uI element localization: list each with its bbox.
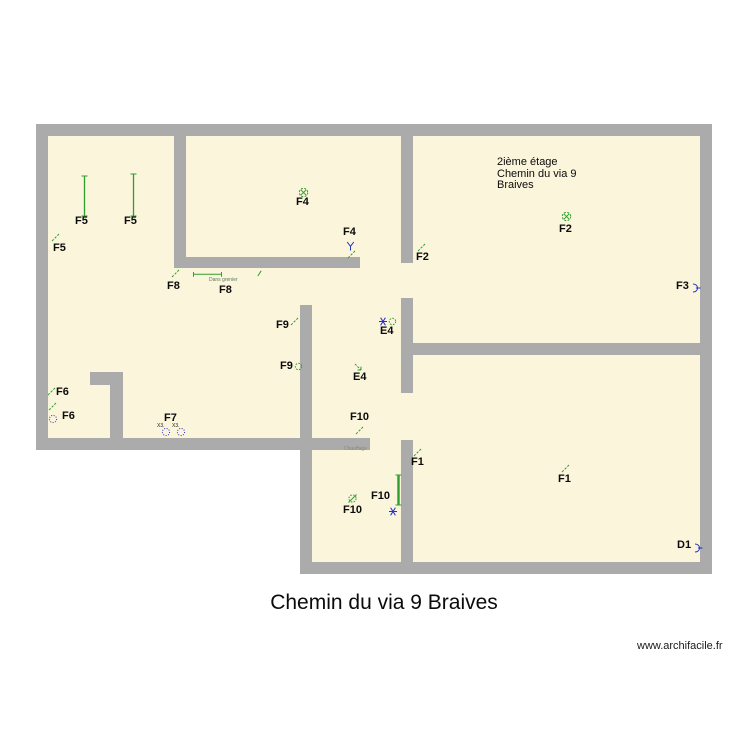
device-label: F9 bbox=[280, 360, 293, 372]
device-label: F4 bbox=[343, 226, 356, 238]
switch-icon bbox=[290, 317, 299, 326]
vline-icon bbox=[394, 473, 403, 507]
tick-icon bbox=[257, 270, 262, 277]
annotation: X3. bbox=[172, 423, 180, 429]
wall bbox=[174, 124, 186, 268]
wall bbox=[36, 438, 370, 450]
device-label: F10 bbox=[343, 504, 362, 516]
gcircle-icon bbox=[294, 362, 303, 371]
device-label: F10 bbox=[350, 411, 369, 423]
wall bbox=[300, 305, 312, 574]
dotcircle-icon bbox=[48, 414, 58, 424]
switch-icon bbox=[561, 464, 570, 473]
device-label: F4 bbox=[296, 196, 309, 208]
plan-title: Chemin du via 9 Braives bbox=[0, 591, 750, 615]
wall bbox=[110, 372, 123, 449]
wall bbox=[174, 257, 360, 268]
annotation: Dans grenier bbox=[209, 277, 238, 283]
floor-plan: F5F5F5F4F4F2F2F3F8F8F9F9E4E4F6F6F7F10F10… bbox=[0, 0, 750, 750]
annotation: Chauffage bbox=[344, 446, 367, 452]
vline-icon bbox=[80, 174, 89, 218]
device-label: F6 bbox=[56, 386, 69, 398]
device-label: F9 bbox=[276, 319, 289, 331]
floor-plan-page: F5F5F5F4F4F2F2F3F8F8F9F9E4E4F6F6F7F10F10… bbox=[0, 0, 750, 750]
device-label: D1 bbox=[677, 539, 691, 551]
device-label: F8 bbox=[219, 284, 232, 296]
watermark-link[interactable]: www.archifacile.fr bbox=[637, 640, 723, 652]
switch-icon bbox=[347, 250, 356, 259]
annotation: X3. bbox=[157, 423, 165, 429]
outlet-icon bbox=[693, 543, 703, 553]
wall bbox=[401, 124, 413, 263]
wall bbox=[36, 124, 712, 136]
device-label: F5 bbox=[53, 242, 66, 254]
device-label: F6 bbox=[62, 410, 75, 422]
device-label: F5 bbox=[75, 215, 88, 227]
device-label: F2 bbox=[416, 251, 429, 263]
room-note-line: Braives bbox=[497, 180, 577, 192]
vline-icon bbox=[129, 172, 138, 218]
device-label: E4 bbox=[380, 325, 393, 337]
device-label: E4 bbox=[353, 371, 366, 383]
light-icon bbox=[561, 211, 572, 222]
device-label: F10 bbox=[371, 490, 390, 502]
device-label: F8 bbox=[167, 280, 180, 292]
switch-icon bbox=[51, 233, 60, 242]
device-label: F2 bbox=[559, 223, 572, 235]
switch-icon bbox=[171, 269, 180, 278]
device-label: F1 bbox=[411, 456, 424, 468]
outlet-icon bbox=[691, 283, 701, 293]
switch-icon bbox=[355, 426, 364, 435]
device-label: F1 bbox=[558, 473, 571, 485]
gcircle-sw-icon bbox=[347, 493, 358, 504]
switch-icon bbox=[48, 402, 57, 411]
wall bbox=[300, 562, 712, 574]
device-label: F3 bbox=[676, 280, 689, 292]
switch-icon bbox=[47, 387, 56, 396]
device-label: F5 bbox=[124, 215, 137, 227]
wall bbox=[36, 124, 48, 450]
room-note-line: 2ième étage bbox=[497, 157, 577, 169]
star-icon bbox=[388, 506, 398, 517]
wall bbox=[401, 343, 712, 355]
room-note: 2ième étageChemin du via 9Braives bbox=[497, 157, 577, 192]
